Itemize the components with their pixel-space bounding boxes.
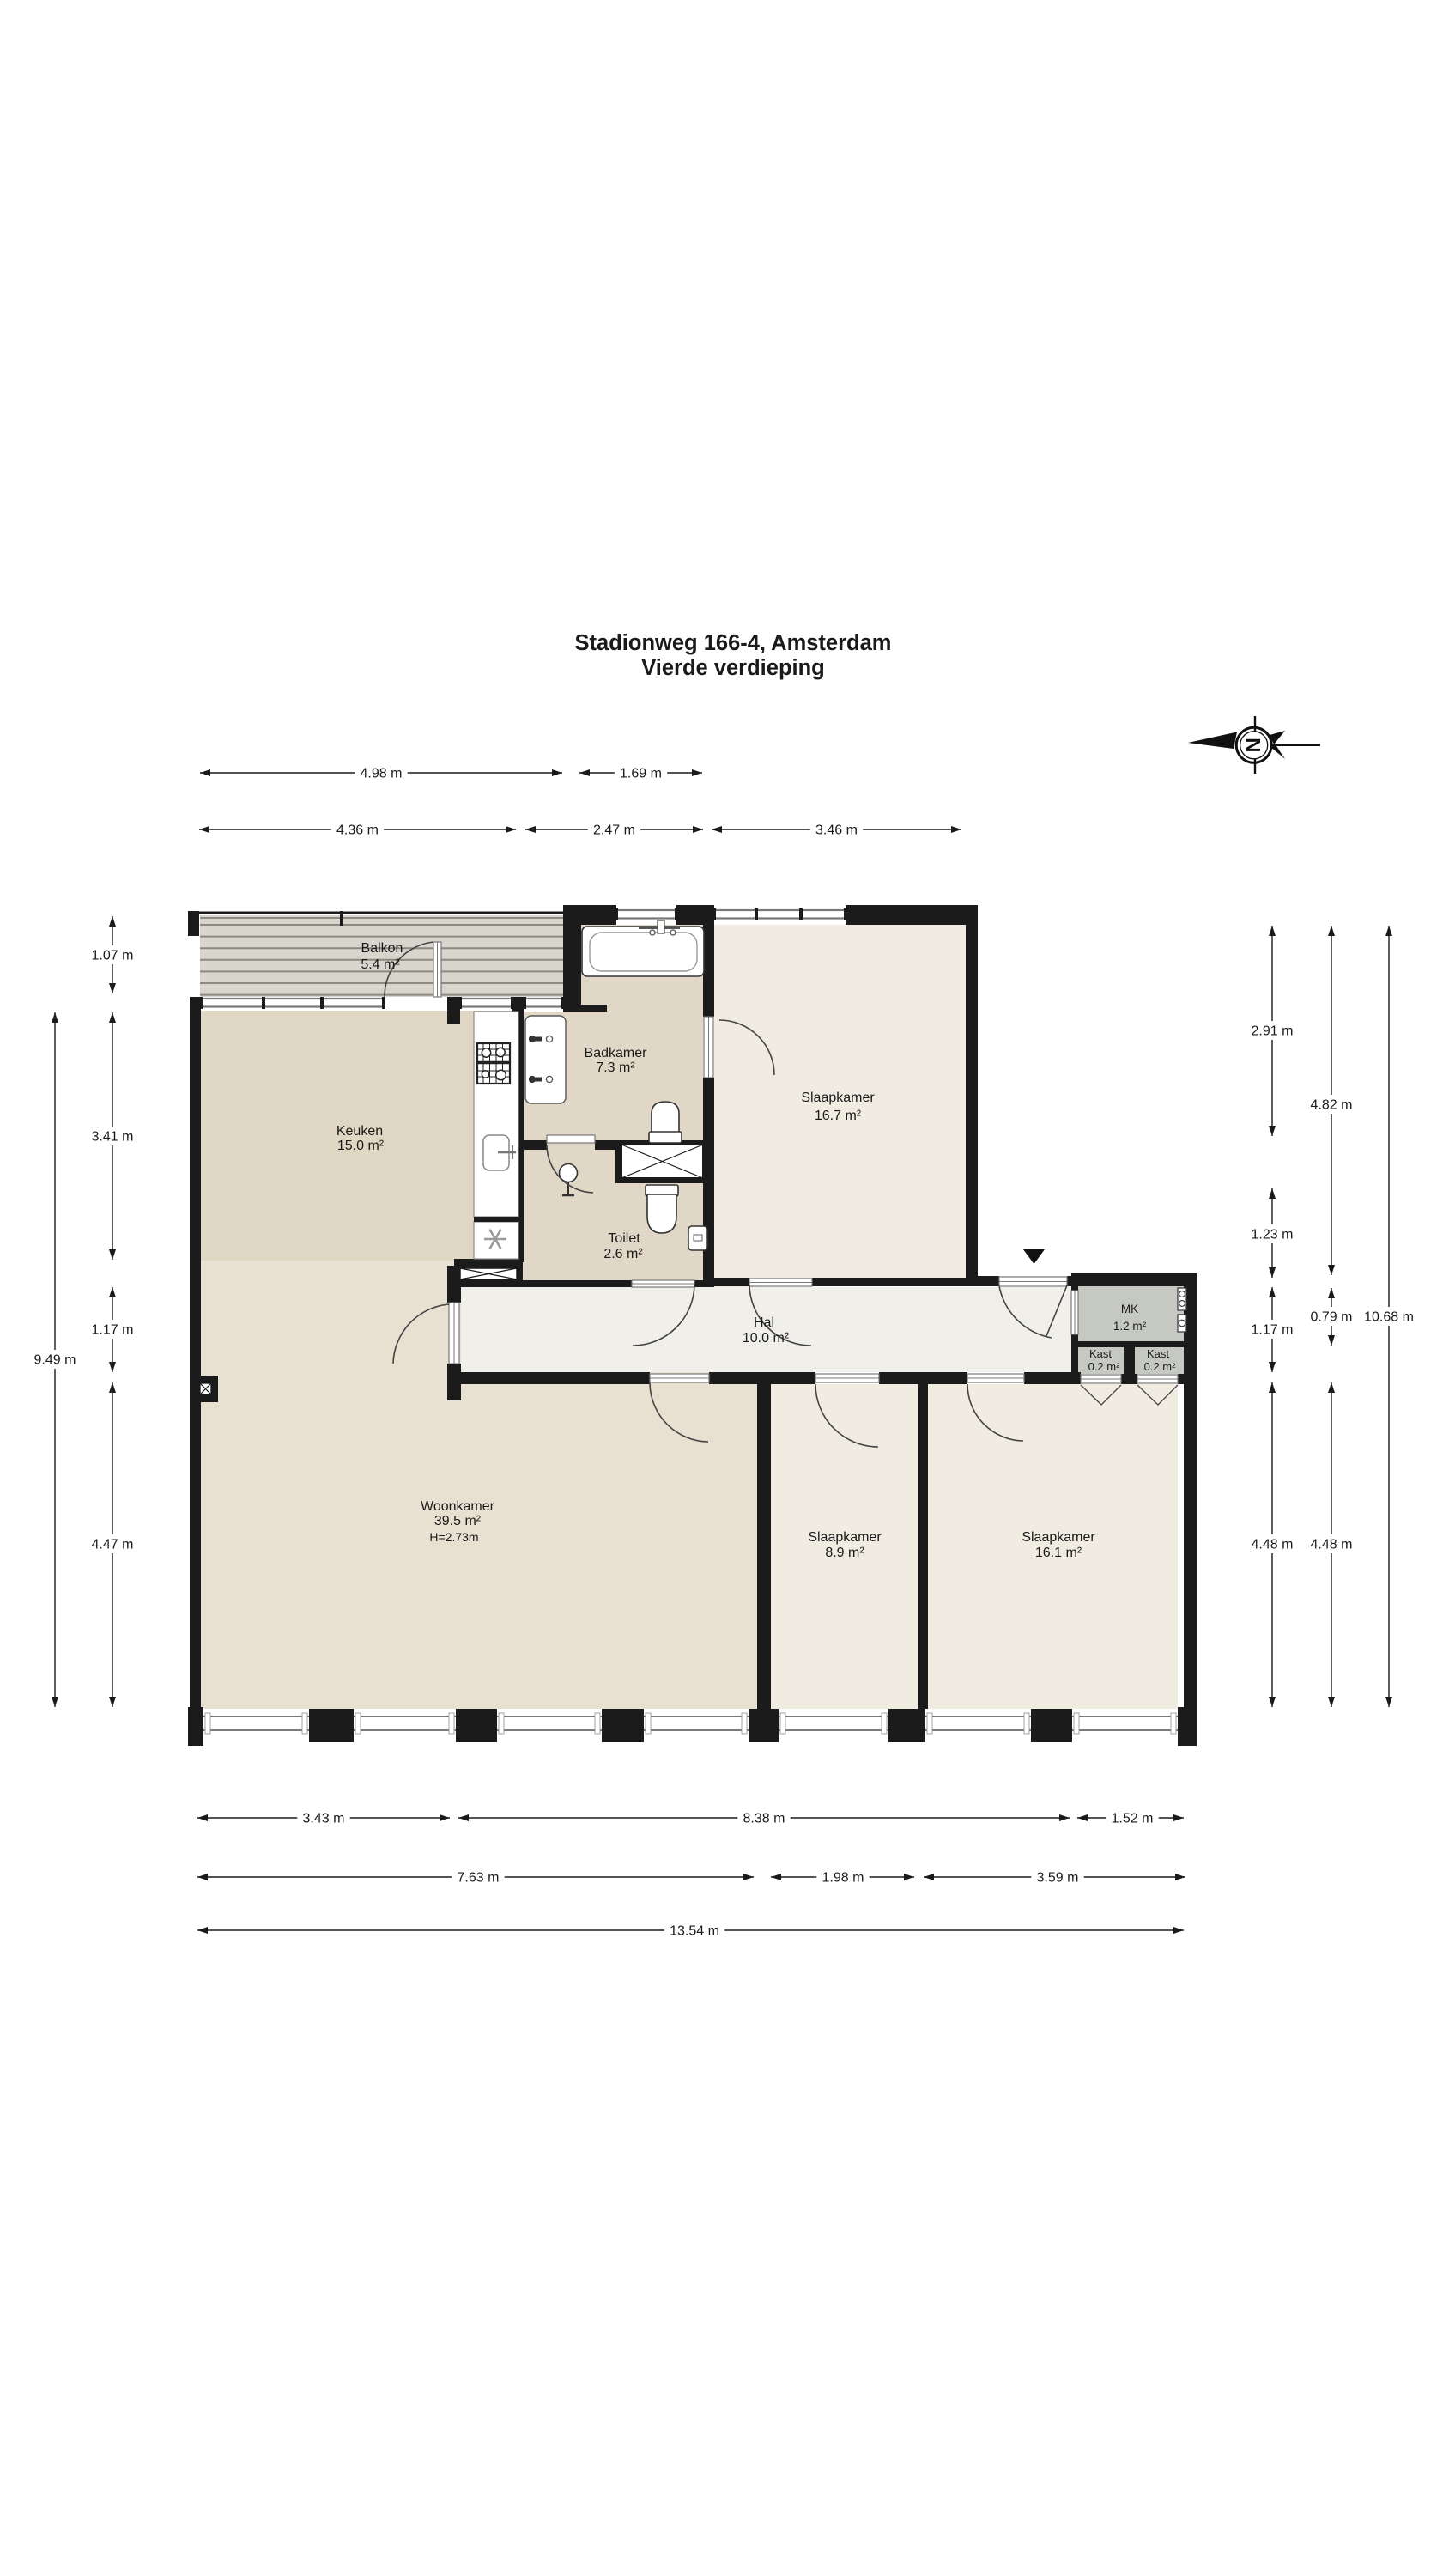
svg-text:Kast: Kast <box>1147 1347 1169 1360</box>
svg-text:Keuken: Keuken <box>336 1124 383 1139</box>
svg-text:3.46 m: 3.46 m <box>815 823 858 838</box>
svg-text:10.68 m: 10.68 m <box>1364 1310 1414 1325</box>
svg-text:2.91 m: 2.91 m <box>1252 1024 1294 1039</box>
svg-text:4.48 m: 4.48 m <box>1311 1538 1353 1552</box>
svg-text:Woonkamer: Woonkamer <box>421 1499 495 1514</box>
svg-text:4.47 m: 4.47 m <box>92 1538 134 1552</box>
svg-text:4.98 m: 4.98 m <box>361 767 403 781</box>
svg-text:9.49 m: 9.49 m <box>34 1353 76 1368</box>
svg-text:MK: MK <box>1121 1303 1138 1315</box>
svg-text:15.0 m²: 15.0 m² <box>337 1139 385 1153</box>
svg-text:2.6 m²: 2.6 m² <box>603 1247 643 1261</box>
svg-text:4.82 m: 4.82 m <box>1311 1098 1353 1113</box>
svg-text:Badkamer: Badkamer <box>585 1046 648 1060</box>
svg-text:1.69 m: 1.69 m <box>620 767 662 781</box>
svg-text:16.1 m²: 16.1 m² <box>1035 1546 1082 1560</box>
svg-text:1.17 m: 1.17 m <box>92 1323 134 1338</box>
svg-text:Stadionweg 166-4, Amsterdam: Stadionweg 166-4, Amsterdam <box>575 631 892 655</box>
svg-text:Toilet: Toilet <box>608 1231 640 1246</box>
svg-text:4.48 m: 4.48 m <box>1252 1538 1294 1552</box>
svg-text:13.54 m: 13.54 m <box>670 1924 719 1939</box>
svg-text:N: N <box>1242 738 1265 752</box>
svg-text:Hal: Hal <box>754 1315 774 1330</box>
svg-text:4.36 m: 4.36 m <box>336 823 379 838</box>
svg-text:16.7 m²: 16.7 m² <box>815 1109 862 1123</box>
svg-text:5.4 m²: 5.4 m² <box>361 957 400 972</box>
svg-text:1.17 m: 1.17 m <box>1252 1323 1294 1338</box>
svg-text:7.63 m: 7.63 m <box>458 1871 500 1886</box>
svg-text:0.2 m²: 0.2 m² <box>1088 1360 1121 1373</box>
svg-text:Vierde verdieping: Vierde verdieping <box>641 656 825 680</box>
svg-text:3.59 m: 3.59 m <box>1037 1871 1079 1886</box>
svg-text:Slaapkamer: Slaapkamer <box>801 1091 875 1105</box>
svg-text:1.52 m: 1.52 m <box>1112 1812 1154 1826</box>
svg-text:Slaapkamer: Slaapkamer <box>808 1530 882 1545</box>
svg-text:1.07 m: 1.07 m <box>92 949 134 963</box>
svg-text:Balkon: Balkon <box>361 941 403 956</box>
svg-text:3.43 m: 3.43 m <box>303 1812 345 1826</box>
svg-text:3.41 m: 3.41 m <box>92 1130 134 1145</box>
svg-text:H=2.73m: H=2.73m <box>429 1530 478 1544</box>
svg-text:8.38 m: 8.38 m <box>743 1812 785 1826</box>
svg-text:Slaapkamer: Slaapkamer <box>1022 1530 1095 1545</box>
svg-text:2.47 m: 2.47 m <box>593 823 635 838</box>
svg-text:Kast: Kast <box>1089 1347 1112 1360</box>
svg-text:39.5 m²: 39.5 m² <box>434 1514 482 1528</box>
svg-text:1.2 m²: 1.2 m² <box>1113 1320 1147 1333</box>
svg-text:0.79 m: 0.79 m <box>1311 1310 1353 1325</box>
svg-text:8.9 m²: 8.9 m² <box>825 1546 864 1560</box>
svg-text:1.23 m: 1.23 m <box>1252 1228 1294 1242</box>
svg-text:0.2 m²: 0.2 m² <box>1144 1360 1177 1373</box>
svg-text:7.3 m²: 7.3 m² <box>596 1060 635 1075</box>
svg-text:1.98 m: 1.98 m <box>822 1871 864 1886</box>
svg-text:10.0 m²: 10.0 m² <box>743 1331 790 1346</box>
